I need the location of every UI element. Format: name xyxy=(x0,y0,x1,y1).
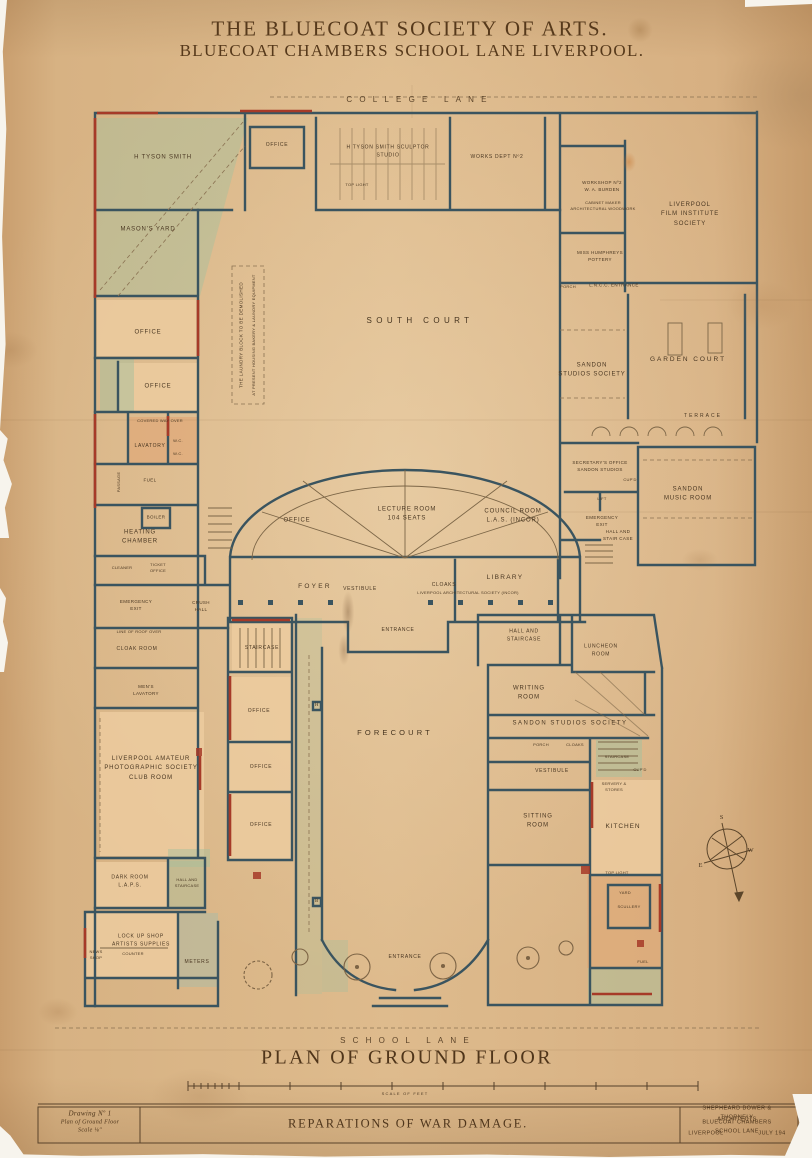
paper-stains-overlay xyxy=(0,0,812,1158)
drawing-sheet: THE BLUECOAT SOCIETY OF ARTS. BLUECOAT C… xyxy=(0,0,812,1158)
